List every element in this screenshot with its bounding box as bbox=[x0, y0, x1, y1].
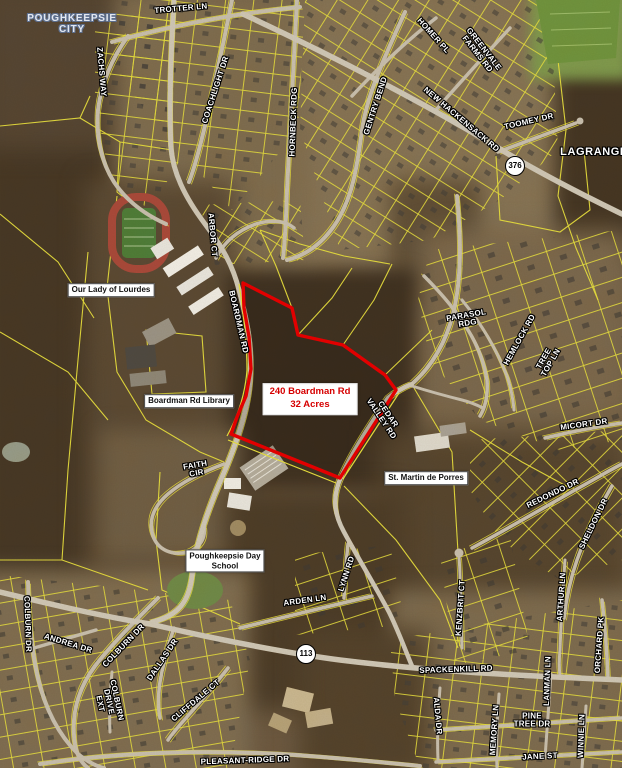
subject-parcel-boundary bbox=[227, 283, 399, 483]
spackenkill-apartments bbox=[268, 687, 333, 734]
greenvale-sports-field bbox=[536, 0, 620, 64]
parcel-and-road-layer bbox=[0, 0, 622, 768]
small-pond bbox=[2, 442, 30, 462]
our-lady-of-lourdes-campus bbox=[142, 238, 224, 347]
aerial-parcel-map[interactable]: POUGHKEEPSIECITYTROTTER LNZACHS WAYCOACH… bbox=[0, 0, 622, 768]
boardman-rd-library-building bbox=[125, 344, 167, 386]
st-martin-de-porres-building bbox=[414, 422, 467, 452]
